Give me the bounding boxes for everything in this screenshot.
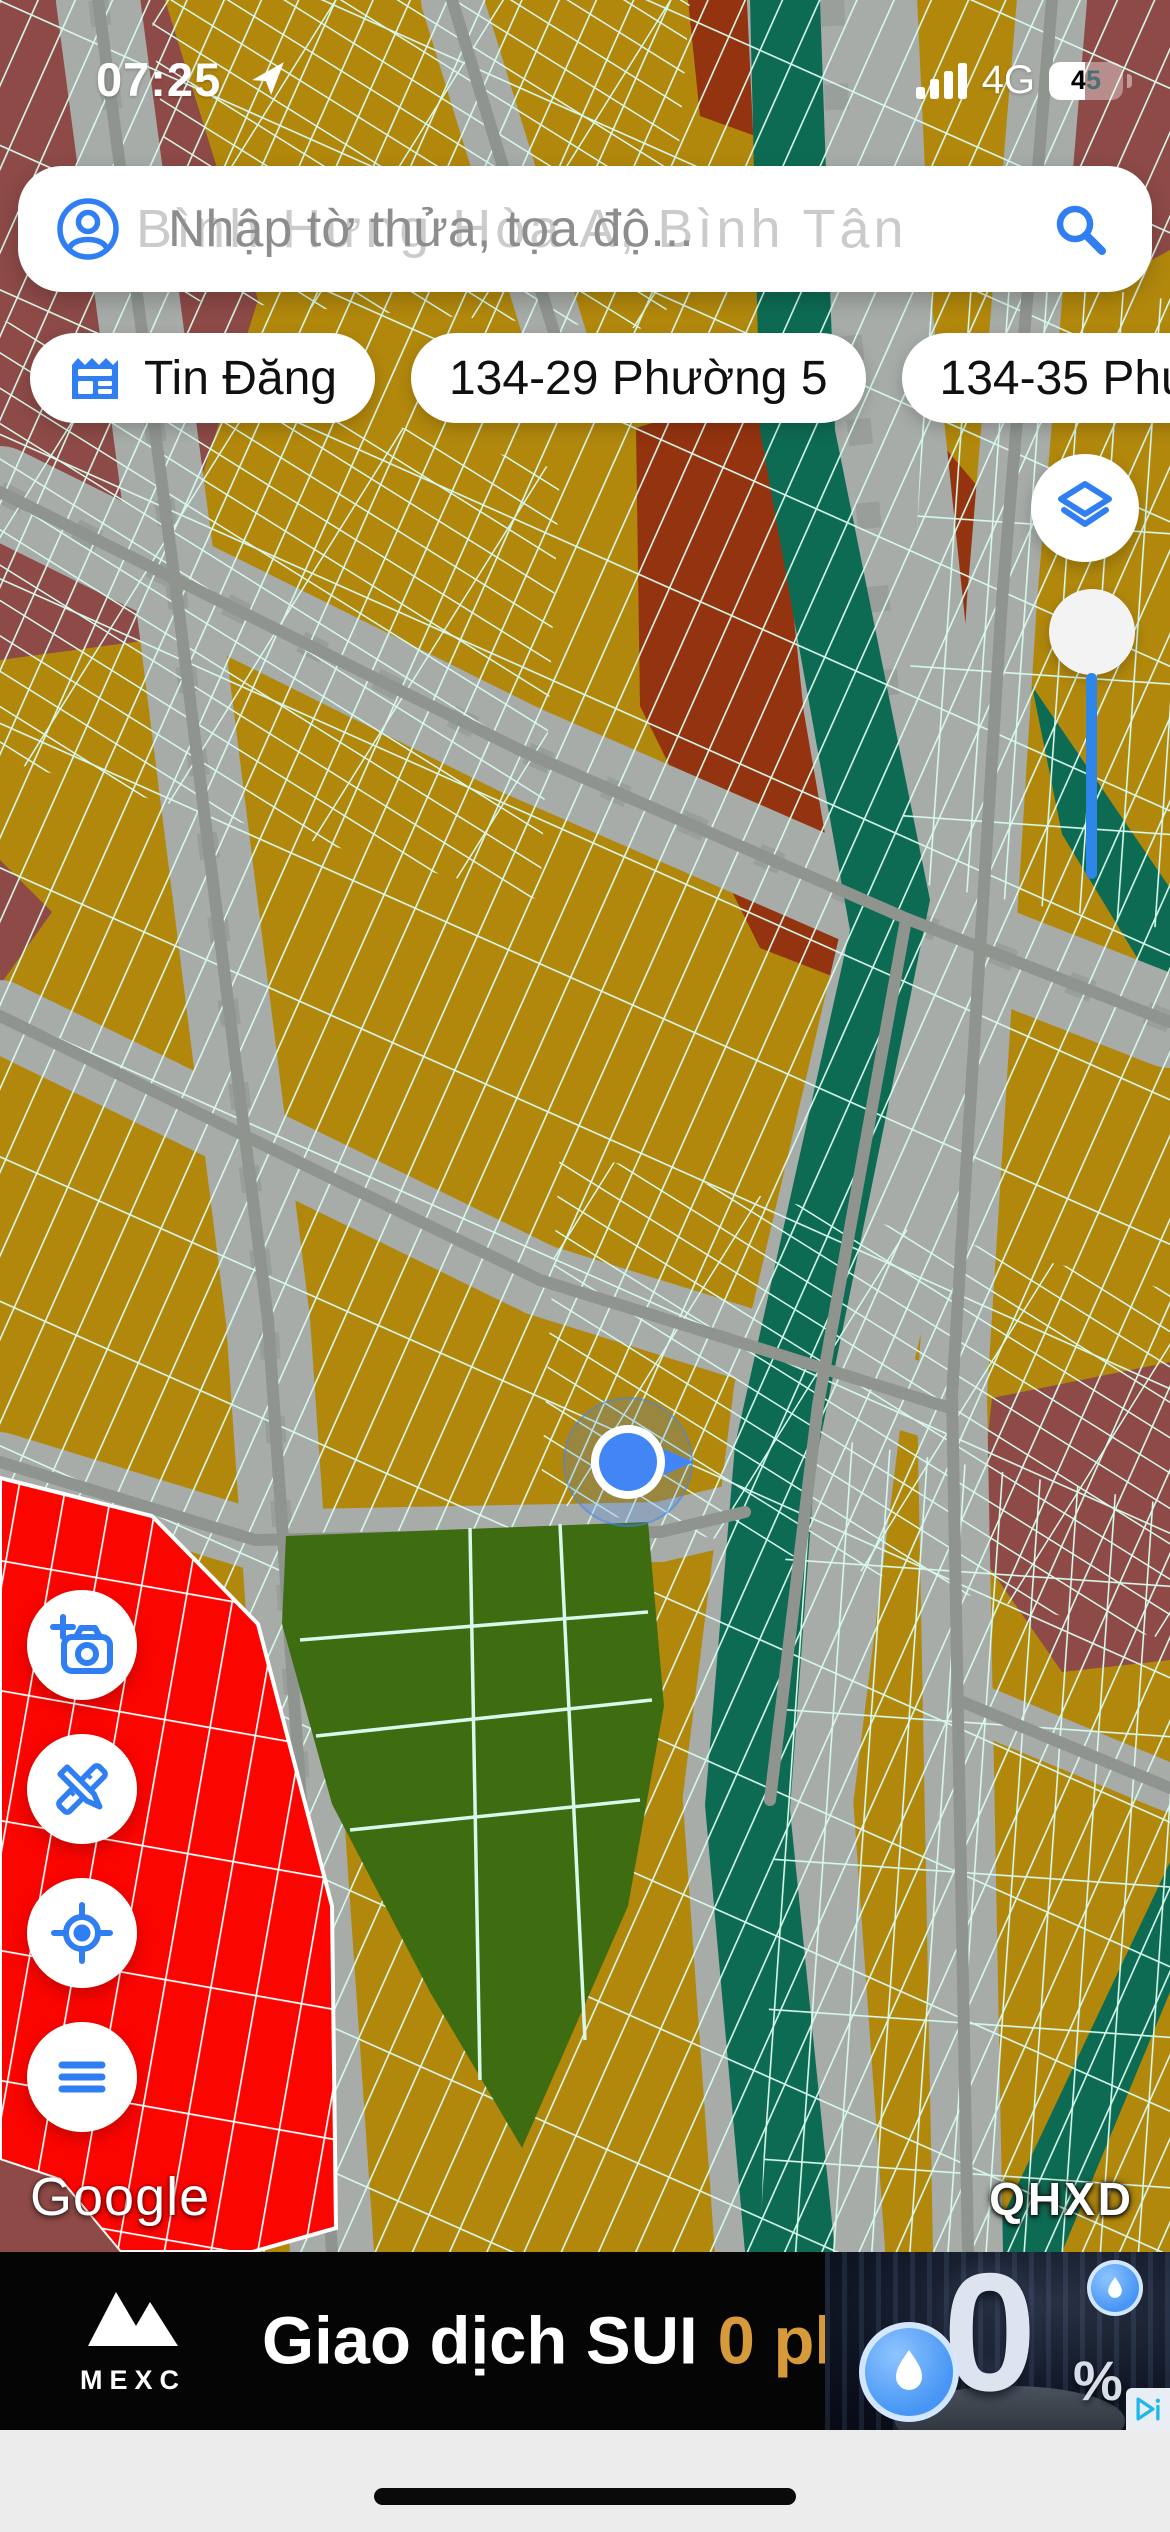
measure-draw-icon [50, 1757, 114, 1821]
sui-drop-coin [859, 2322, 959, 2422]
locate-button[interactable] [27, 1878, 137, 1988]
mexc-logo [78, 2274, 188, 2358]
percent-graphic: % [1073, 2348, 1123, 2413]
search-icon[interactable] [1050, 199, 1110, 259]
measure-button[interactable] [27, 1734, 137, 1844]
newspaper-icon [68, 351, 122, 405]
chip-label: 134-35 Phường [940, 351, 1170, 406]
location-arrow-icon [250, 60, 286, 96]
chip-row: Tin Đăng 134-29 Phường 5 134-35 Phường [30, 333, 1170, 423]
layer-badge-qhxd: QHXD [989, 2172, 1134, 2226]
network-label: 4G [982, 58, 1035, 103]
adchoices-icon[interactable] [1126, 2388, 1170, 2430]
search-bar[interactable]: Bình Hưng Hòa A, Bình Tân Nhập tờ thửa, … [18, 166, 1152, 292]
menu-button[interactable] [27, 2022, 137, 2132]
app-screen: 07:25 4G 45 Bình Hưng Hòa A, Bình Tân Nh… [0, 0, 1170, 2532]
battery-cap [1127, 74, 1132, 88]
chip-label: Tin Đăng [144, 351, 337, 406]
chip-sheet-134-35[interactable]: 134-35 Phường [902, 333, 1170, 423]
layers-button[interactable] [1031, 454, 1139, 562]
sui-drop-coin-small [1087, 2260, 1143, 2316]
signal-bars-icon [916, 63, 968, 99]
ad-banner[interactable]: MEXC Giao dịch SUI0 phí 0 % [0, 2252, 1170, 2430]
opacity-slider-track[interactable] [1086, 673, 1097, 879]
battery-icon: 45 [1049, 62, 1123, 100]
battery-percent: 45 [1049, 62, 1123, 100]
account-icon[interactable] [56, 197, 120, 261]
google-attribution: Google [30, 2166, 210, 2228]
chip-tin-dang[interactable]: Tin Đăng [30, 333, 375, 423]
chip-sheet-134-29[interactable]: 134-29 Phường 5 [411, 333, 866, 423]
menu-icon [50, 2045, 114, 2109]
location-marker[interactable] [564, 1398, 694, 1526]
mexc-wordmark: MEXC [58, 2365, 208, 2396]
layers-icon [1056, 479, 1114, 537]
bottom-safe-area [0, 2430, 1170, 2532]
gps-locate-icon [50, 1901, 114, 1965]
opacity-slider-knob[interactable] [1049, 589, 1135, 675]
ad-graphic: 0 % [825, 2252, 1170, 2430]
status-time: 07:25 [96, 52, 221, 107]
capture-button[interactable] [27, 1590, 137, 1700]
home-indicator[interactable] [374, 2488, 796, 2505]
mexc-brand-block: MEXC [58, 2274, 208, 2396]
ad-headline: Giao dịch SUI0 phí [262, 2303, 874, 2380]
chip-label: 134-29 Phường 5 [449, 351, 828, 406]
camera-plus-icon [50, 1613, 114, 1677]
zero-graphic: 0 [943, 2252, 1036, 2429]
search-input[interactable]: Nhập tờ thửa, tọa độ... [168, 166, 694, 292]
